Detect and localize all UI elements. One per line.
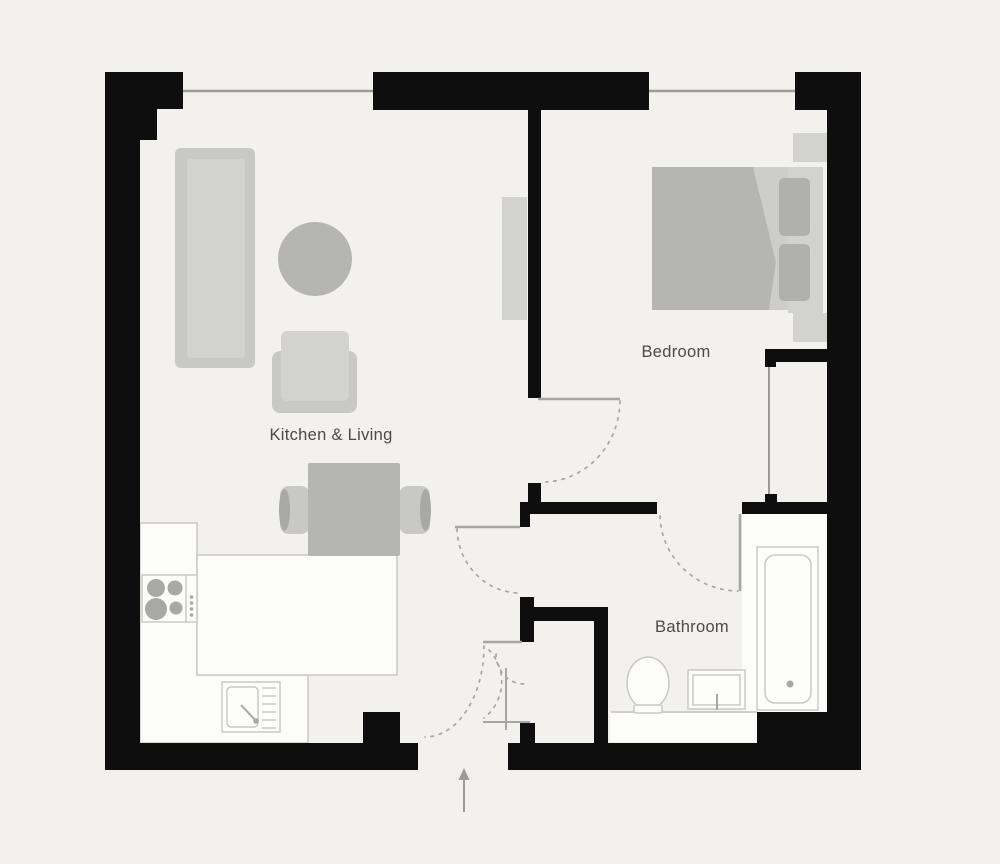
exterior-wall-bottom-left	[105, 743, 418, 770]
chimney-block-kitchen	[363, 712, 400, 743]
interior-wall-hall-top-stub	[528, 483, 541, 503]
bedroom-furniture	[652, 133, 827, 494]
room-label-bathroom: Bathroom	[655, 618, 729, 636]
sofa-cushion	[187, 159, 245, 358]
bathtub-drain	[787, 681, 794, 688]
entry-stub	[520, 723, 535, 743]
kitchen-sink-faucet-head	[253, 718, 259, 724]
corner-block-bottom-right	[757, 712, 861, 770]
radiator	[502, 197, 527, 320]
hallway-door-swing-large	[425, 646, 484, 737]
interior-wall-bathroom-left	[594, 621, 608, 743]
hallway-door-swing-small	[496, 654, 524, 684]
exterior-wall-bottom-right	[508, 743, 757, 770]
exterior-wall-left	[105, 72, 140, 770]
armchair-cushion	[281, 331, 349, 401]
bedroom-door-swing	[546, 401, 620, 482]
corner-step-top-left	[105, 109, 157, 140]
hob-burner	[145, 598, 167, 620]
interior-wall-hall-top-nub	[520, 502, 530, 527]
kitchen-rug	[197, 555, 397, 675]
corner-block-top-right	[795, 72, 861, 110]
kitchen-door-swing	[457, 529, 519, 593]
interior-wall-bathroom-top	[742, 502, 829, 514]
room-label-bedroom: Bedroom	[641, 343, 710, 361]
bathroom-top-nub	[765, 494, 777, 502]
interior-wall-living-bedroom	[528, 109, 541, 398]
hob-burner	[168, 581, 183, 596]
floor-plan-canvas: Kitchen & Living Bedroom Bathroom	[0, 0, 1000, 864]
hall-L-bar	[534, 607, 608, 621]
exterior-wall-right	[827, 110, 861, 712]
hallway-door-swing-mid	[484, 650, 502, 718]
nightstand-top	[793, 133, 827, 162]
nightstand-bottom	[793, 313, 827, 342]
hob-burner	[147, 579, 165, 597]
interior-wall-hall-top	[520, 502, 657, 514]
floor-plan: Kitchen & Living Bedroom Bathroom	[0, 0, 1000, 864]
hob-burner	[170, 602, 183, 615]
dining-table	[308, 463, 400, 556]
hob-knob	[190, 601, 194, 605]
toilet-base	[634, 705, 662, 713]
interior-wall-bedroom-stub	[765, 349, 829, 362]
exterior-wall-top	[373, 72, 649, 110]
toilet	[627, 657, 669, 709]
hob-knob	[190, 607, 194, 611]
dining-chair-left-back	[279, 489, 290, 531]
bed-pillow-top	[779, 178, 810, 236]
bed-pillow-bottom	[779, 244, 810, 301]
hob-knob	[190, 613, 194, 617]
dining-chair-right-back	[420, 489, 431, 531]
hob-knob	[190, 595, 194, 599]
bed-duvet	[652, 167, 776, 310]
hall-L-stub	[520, 597, 534, 642]
bathroom-door-swing	[660, 516, 738, 591]
corner-block-top-left	[105, 72, 183, 109]
entrance-arrow	[459, 768, 470, 812]
kitchen-sink	[222, 682, 280, 732]
room-label-kitchen-living: Kitchen & Living	[269, 426, 392, 444]
bedroom-stub-nub	[765, 362, 776, 367]
coffee-table	[278, 222, 352, 296]
vanity-counter	[610, 712, 757, 742]
